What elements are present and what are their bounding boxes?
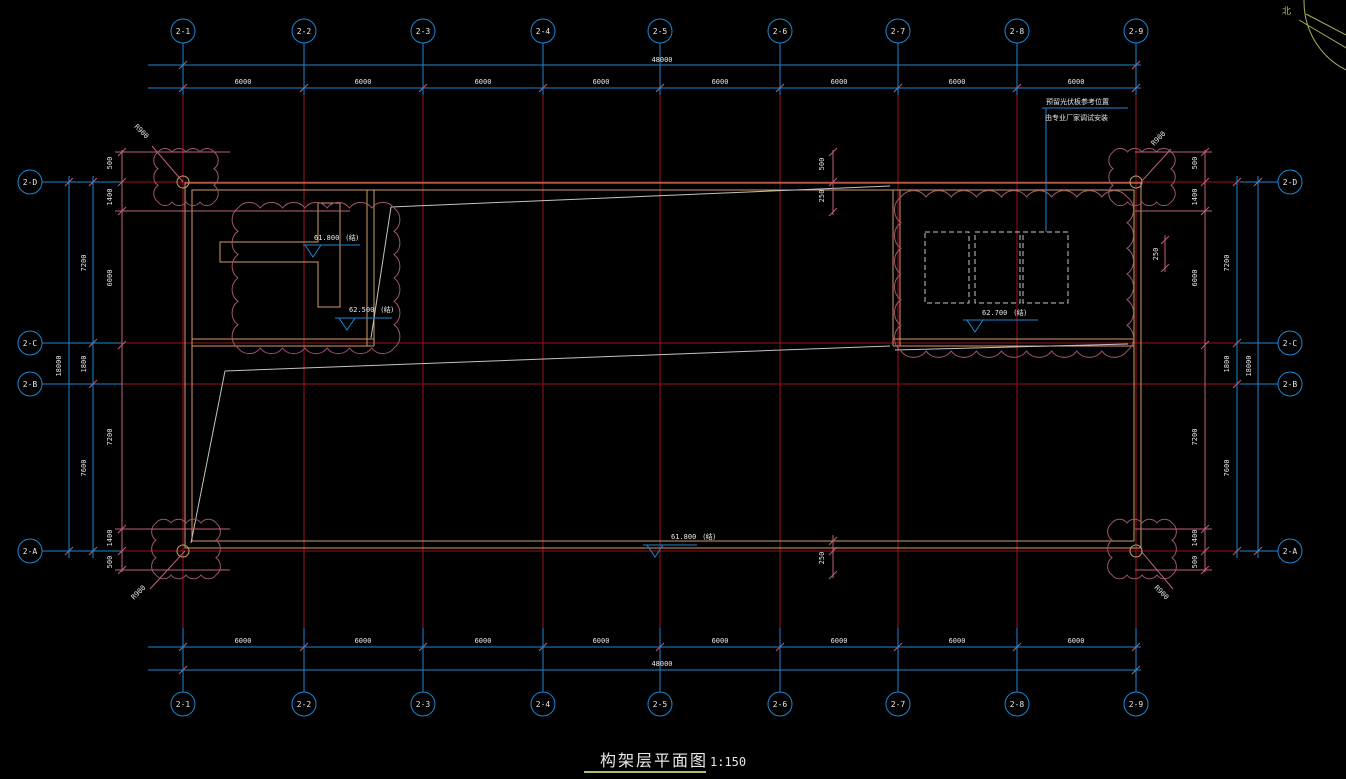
dim-offset: 1400: [1191, 189, 1199, 206]
dim-small: 500: [818, 158, 826, 171]
annotation-line1: 预留光伏板参考位置: [1046, 97, 1109, 106]
level-triangle-icon: [339, 318, 355, 330]
pv-panel-pads: [925, 232, 1068, 303]
level-tag: (结): [346, 233, 359, 242]
level-marker-1: 61.800 (结): [303, 233, 360, 257]
dim-bay: 6000: [831, 637, 848, 645]
dims-small: 500 250 250 250: [818, 158, 1160, 565]
row-bubble-label: 2-C: [1283, 339, 1298, 348]
dim-bay: 6000: [593, 78, 610, 86]
corner-note-br: R900: [1153, 584, 1171, 602]
cloud-right: [894, 191, 1133, 358]
dim-row-spacing: 7600: [80, 460, 88, 477]
dim-offset: 500: [106, 157, 114, 170]
dims-right: 18000 7200 1800 7600 500 1400 6000 7200 …: [1191, 157, 1253, 569]
dim-row-spacing: 7600: [1223, 460, 1231, 477]
level-marker-2: 62.500 (结): [335, 305, 394, 330]
corner-leader-tl: [152, 146, 183, 182]
level-value: 62.700: [982, 309, 1007, 317]
dim-offset: 500: [1191, 556, 1199, 569]
level-marker-3: 62.700 (结): [963, 308, 1038, 332]
grid-bubbles-right: 2-D 2-C 2-B 2-A: [1278, 170, 1302, 563]
dim-bay: 6000: [712, 637, 729, 645]
grid-bubbles-left: 2-D 2-C 2-B 2-A: [18, 170, 42, 563]
col-bubble-label: 2-3: [416, 27, 431, 36]
dim-bay: 6000: [355, 637, 372, 645]
extension-lines: [115, 146, 1212, 589]
row-bubble-label: 2-A: [23, 547, 38, 556]
corner-note-tr: R900: [1150, 130, 1168, 148]
row-bubble-label: 2-C: [23, 339, 38, 348]
dim-offset: 7200: [106, 429, 114, 446]
dim-bay: 6000: [949, 78, 966, 86]
col-bubble-label: 2-9: [1129, 700, 1144, 709]
dim-offset: 6000: [106, 270, 114, 287]
dim-offset: 7200: [1191, 429, 1199, 446]
cloud-corner-tr: [1109, 148, 1175, 205]
dim-bay: 6000: [712, 78, 729, 86]
col-bubble-label: 2-6: [773, 27, 788, 36]
grid-bubbles-top: 2-1 2-2 2-3 2-4 2-5 2-6 2-7 2-8 2-9: [171, 19, 1148, 43]
annotation-line2: 由专业厂家调试安装: [1045, 113, 1108, 122]
dim-bay: 6000: [949, 637, 966, 645]
dim-offset: 1400: [1191, 530, 1199, 547]
col-bubble-label: 2-1: [176, 27, 191, 36]
north-circle-icon: [1304, 0, 1346, 78]
level-tag: (结): [703, 532, 716, 541]
pv-annotation: 预留光伏板参考位置 由专业厂家调试安装: [1042, 97, 1128, 232]
cloud-left: [232, 202, 400, 353]
col-bubble-label: 2-5: [653, 27, 668, 36]
dim-bay: 6000: [475, 78, 492, 86]
level-triangle-icon: [967, 320, 983, 332]
col-bubble-label: 2-4: [536, 700, 551, 709]
level-markers: 61.800 (结) 62.500 (结) 62.700 (结) 61.800 …: [303, 233, 1038, 557]
dims-left: 18000 7200 1800 7600 500 1400 6000 7200 …: [55, 157, 114, 569]
level-marker-4: 61.800 (结): [643, 532, 716, 557]
grid-bubbles-bottom: 2-1 2-2 2-3 2-4 2-5 2-6 2-7 2-8 2-9: [171, 692, 1148, 716]
frame-level-plan: 61.800 (结) 62.500 (结) 62.700 (结) 61.800 …: [0, 0, 1346, 779]
drawing-title: 构架层平面图: [600, 751, 708, 770]
dim-bay: 6000: [831, 78, 848, 86]
col-bubble-label: 2-1: [176, 700, 191, 709]
dim-bay: 6000: [475, 637, 492, 645]
drawing-scale: 1:150: [710, 755, 746, 769]
dim-total-right: 18000: [1245, 355, 1253, 376]
dimension-lines: [69, 65, 1258, 670]
dim-bay: 6000: [355, 78, 372, 86]
north-arrow: 北: [1282, 0, 1346, 78]
row-bubble-label: 2-B: [23, 380, 38, 389]
dim-row-spacing: 1800: [1223, 356, 1231, 373]
title-block: 构架层平面图 1:150: [584, 751, 746, 772]
level-value: 62.500: [349, 306, 374, 314]
row-bubble-label: 2-A: [1283, 547, 1298, 556]
col-bubble-label: 2-2: [297, 700, 312, 709]
col-bubble-label: 2-9: [1129, 27, 1144, 36]
cad-drawing-canvas[interactable]: 61.800 (结) 62.500 (结) 62.700 (结) 61.800 …: [0, 0, 1346, 779]
col-bubble-label: 2-8: [1010, 27, 1025, 36]
dim-total-left: 18000: [55, 355, 63, 376]
col-bubble-label: 2-5: [653, 700, 668, 709]
parapet-inner: [192, 190, 1134, 541]
level-value: 61.800: [671, 533, 696, 541]
col-bubble-label: 2-7: [891, 700, 906, 709]
dim-total-top: 48000: [651, 56, 672, 64]
level-tag: (结): [1014, 308, 1027, 317]
dim-total-bottom: 48000: [651, 660, 672, 668]
dim-small: 250: [818, 552, 826, 565]
level-triangle-icon: [305, 245, 321, 257]
dim-bay: 6000: [1068, 78, 1085, 86]
dim-offset: 500: [1191, 157, 1199, 170]
dim-bay: 6000: [593, 637, 610, 645]
dimension-ticks: [65, 61, 1262, 674]
level-tag: (结): [381, 305, 394, 314]
dim-bay: 6000: [235, 78, 252, 86]
corner-leader-tr: [1141, 149, 1171, 182]
dim-bay: 6000: [235, 637, 252, 645]
corner-note-tl: R900: [133, 123, 151, 141]
corner-note-bl: R900: [130, 584, 148, 602]
dim-small: 250: [818, 190, 826, 203]
col-bubble-label: 2-6: [773, 700, 788, 709]
col-bubble-label: 2-3: [416, 700, 431, 709]
dim-row-spacing: 7200: [80, 255, 88, 272]
col-bubble-label: 2-2: [297, 27, 312, 36]
col-bubble-label: 2-4: [536, 27, 551, 36]
dim-row-spacing: 7200: [1223, 255, 1231, 272]
dim-small: 250: [1152, 248, 1160, 261]
row-bubble-label: 2-D: [23, 178, 38, 187]
corner-notes: R900 R900 R900 R900: [130, 123, 1170, 602]
dim-offset: 500: [106, 556, 114, 569]
row-bubble-label: 2-D: [1283, 178, 1298, 187]
row-bubble-label: 2-B: [1283, 380, 1298, 389]
dim-row-spacing: 1800: [80, 356, 88, 373]
dim-offset: 6000: [1191, 270, 1199, 287]
col-bubble-label: 2-7: [891, 27, 906, 36]
level-value: 61.800: [314, 234, 339, 242]
dim-offset: 1400: [106, 530, 114, 547]
dim-offset: 1400: [106, 189, 114, 206]
dim-bay: 6000: [1068, 637, 1085, 645]
revision-clouds: [152, 148, 1177, 578]
north-label: 北: [1282, 6, 1291, 17]
col-bubble-label: 2-8: [1010, 700, 1025, 709]
